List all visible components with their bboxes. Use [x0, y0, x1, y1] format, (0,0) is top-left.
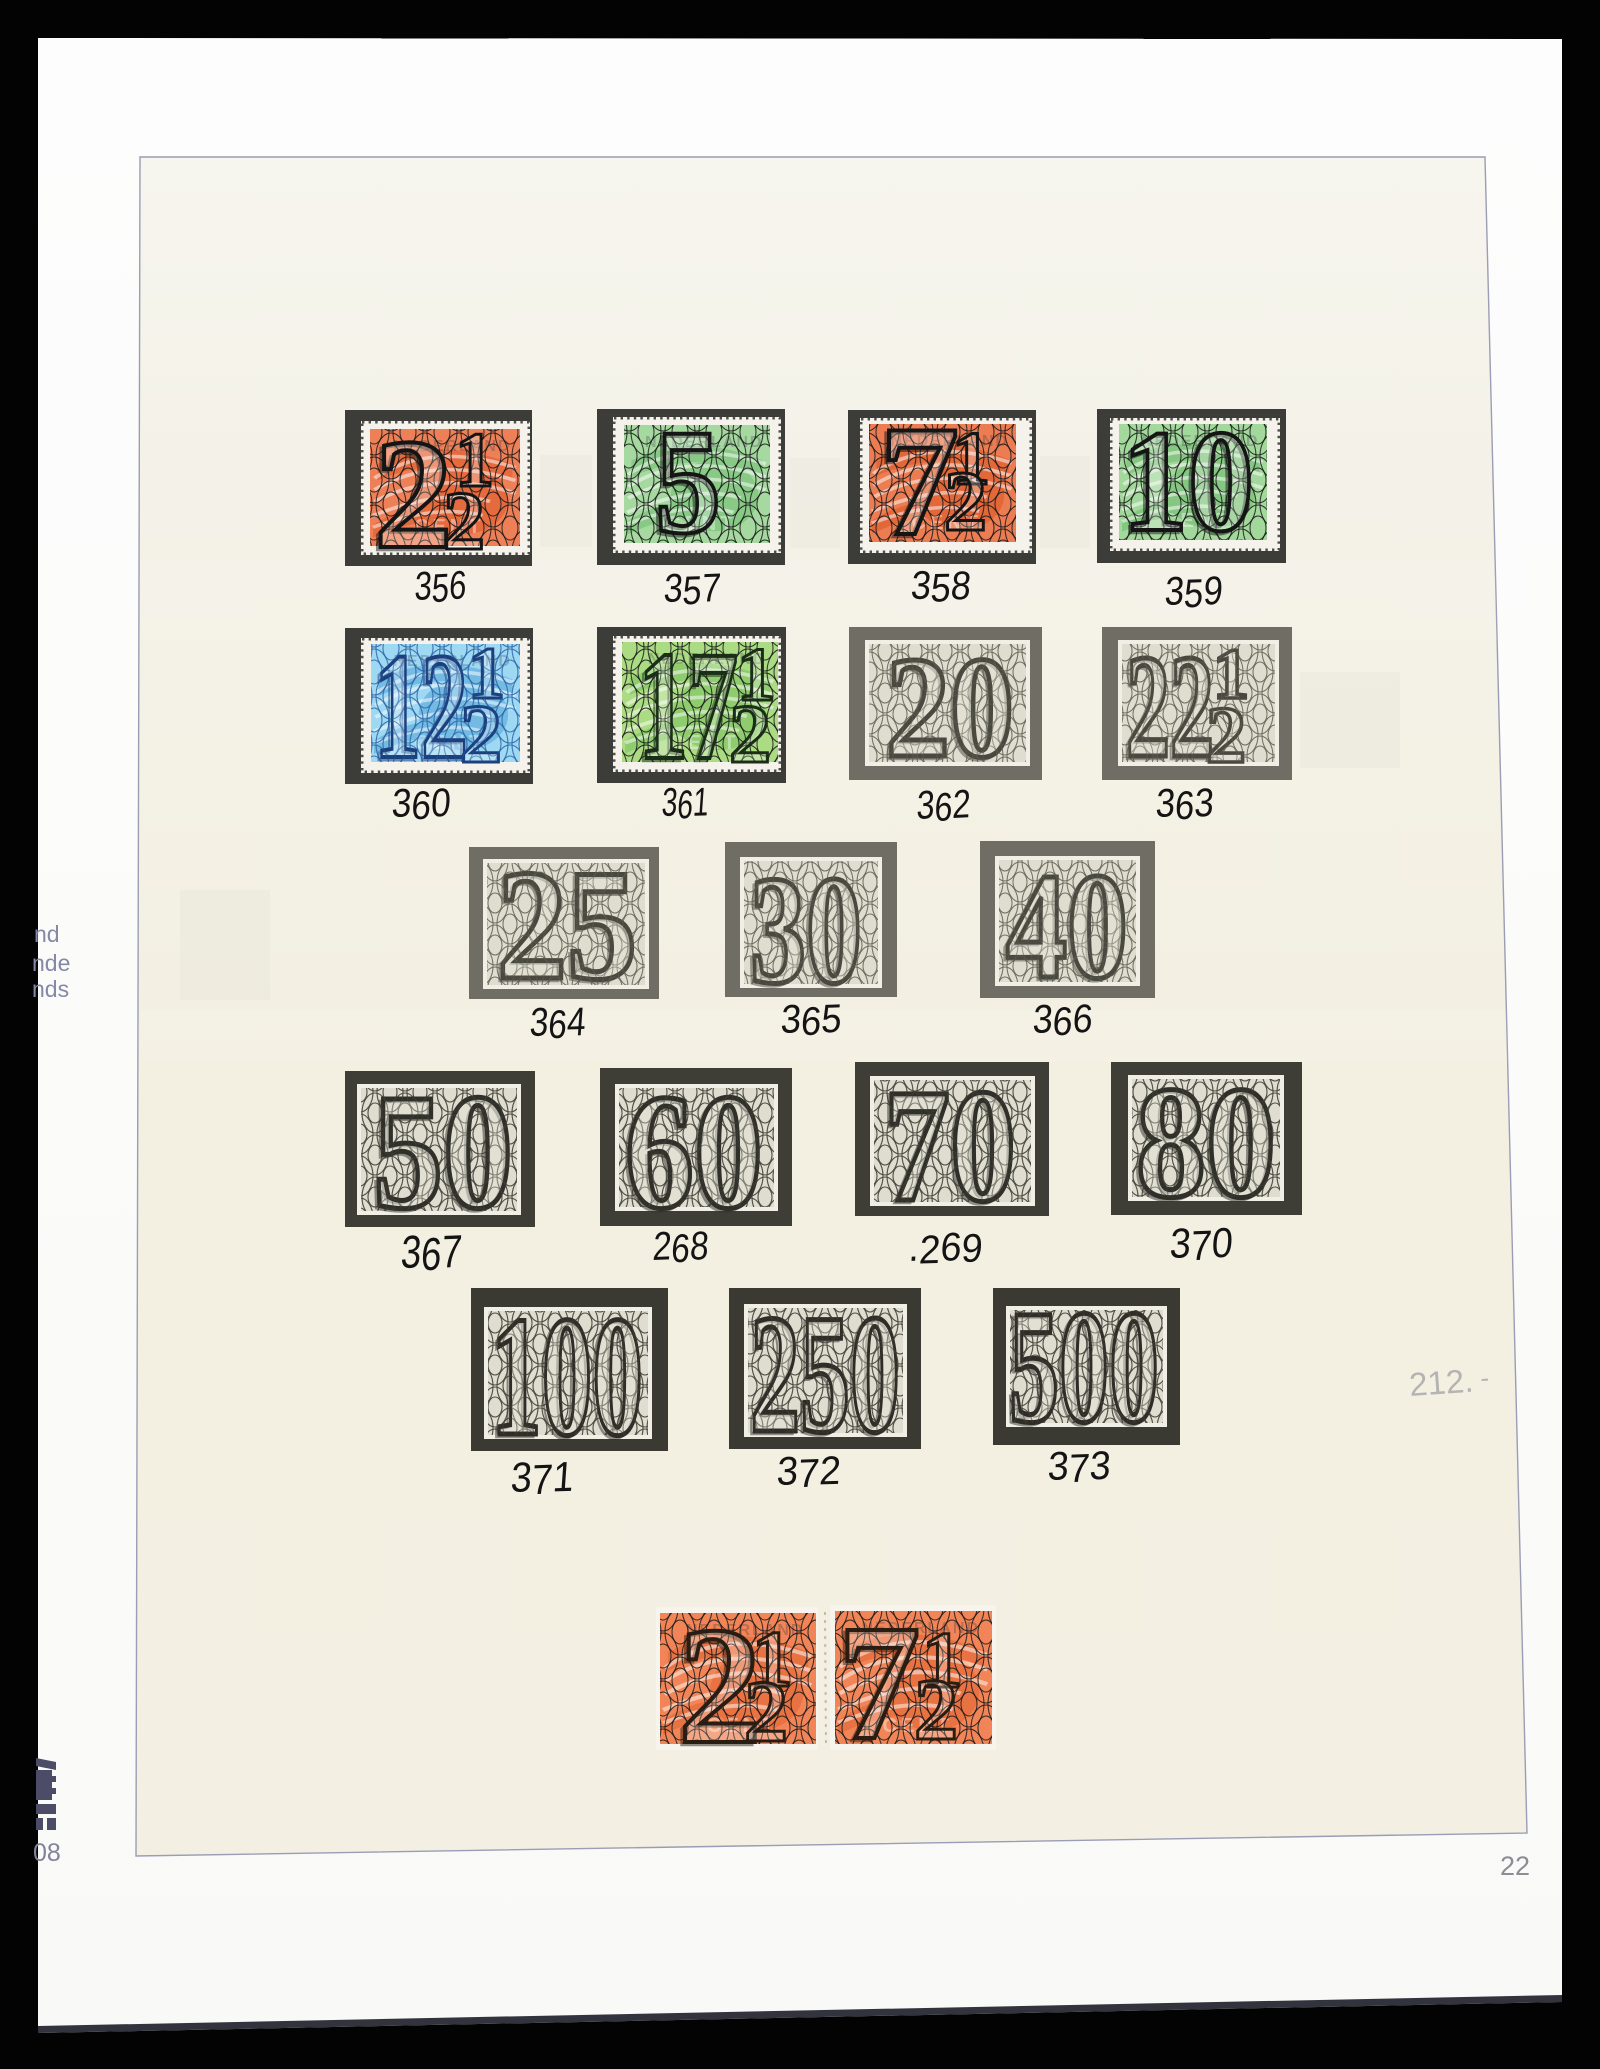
svg-text:22: 22	[1500, 1851, 1530, 1881]
svg-text:367: 367	[399, 1224, 464, 1281]
svg-text:08: 08	[33, 1839, 61, 1867]
svg-text:268: 268	[651, 1223, 710, 1272]
svg-text:365: 365	[779, 996, 843, 1045]
svg-text:360: 360	[390, 780, 452, 829]
svg-text:373: 373	[1046, 1443, 1112, 1492]
svg-text:363: 363	[1154, 780, 1215, 829]
svg-text:nd: nd	[34, 921, 60, 947]
svg-text:359: 359	[1163, 568, 1224, 617]
svg-text:366: 366	[1031, 996, 1094, 1045]
svg-text:.269: .269	[907, 1223, 984, 1273]
svg-text:362: 362	[915, 781, 971, 831]
svg-text:361: 361	[660, 779, 710, 828]
svg-text:356: 356	[413, 562, 467, 612]
svg-text:372: 372	[775, 1448, 842, 1497]
svg-text:358: 358	[909, 563, 973, 611]
svg-text:371: 371	[509, 1452, 575, 1504]
svg-text:nds: nds	[32, 976, 69, 1002]
svg-text:370: 370	[1168, 1218, 1234, 1270]
svg-text:364: 364	[528, 999, 587, 1048]
svg-text:357: 357	[662, 565, 722, 614]
svg-text:nde: nde	[32, 950, 70, 976]
